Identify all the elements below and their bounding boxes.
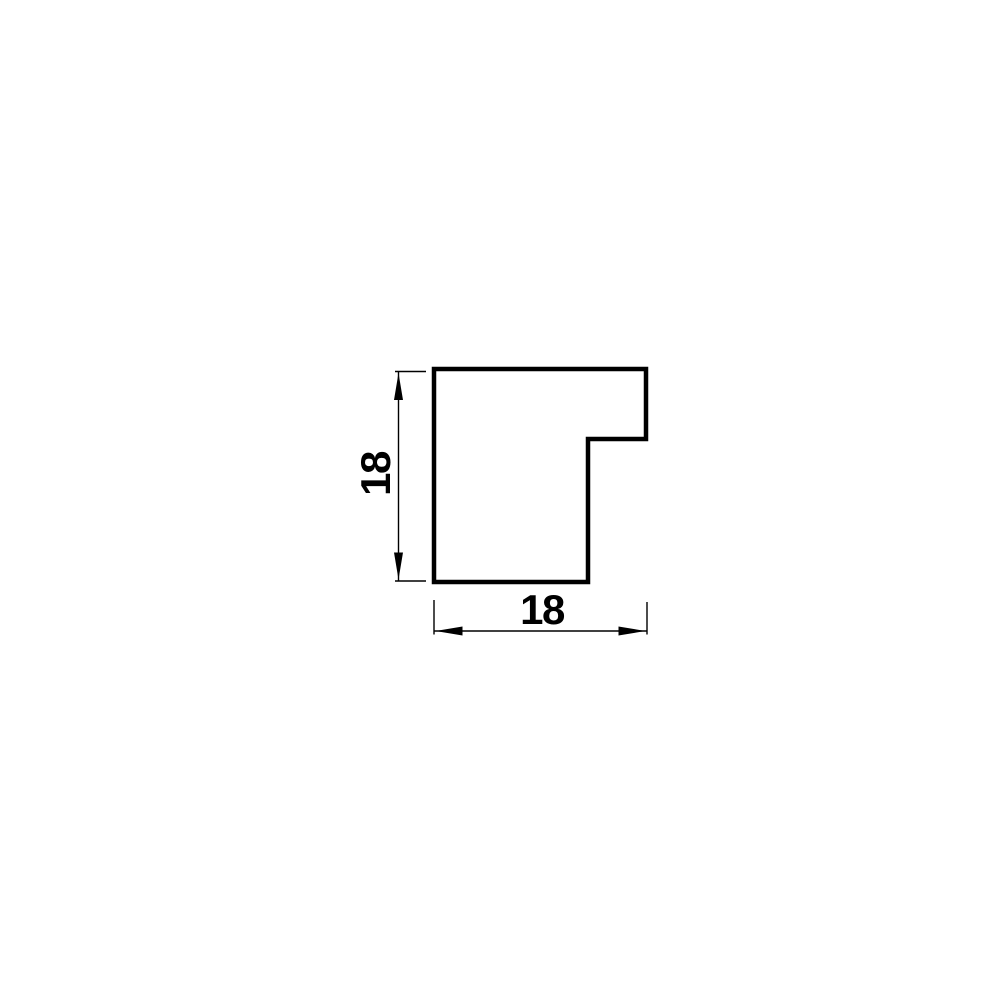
height-dimension-value: 18 (352, 451, 399, 496)
width-dimension: 18 (434, 586, 647, 636)
arrow-down-icon (394, 553, 403, 580)
arrow-left-icon (436, 627, 463, 636)
height-dimension: 18 (352, 372, 426, 582)
profile-drawing: 18 18 (0, 0, 1000, 1000)
arrow-right-icon (619, 627, 646, 636)
arrow-up-icon (394, 373, 403, 400)
technical-drawing-canvas: 18 18 (0, 0, 1000, 1000)
width-dimension-value: 18 (520, 586, 565, 633)
profile-outline (434, 369, 646, 582)
